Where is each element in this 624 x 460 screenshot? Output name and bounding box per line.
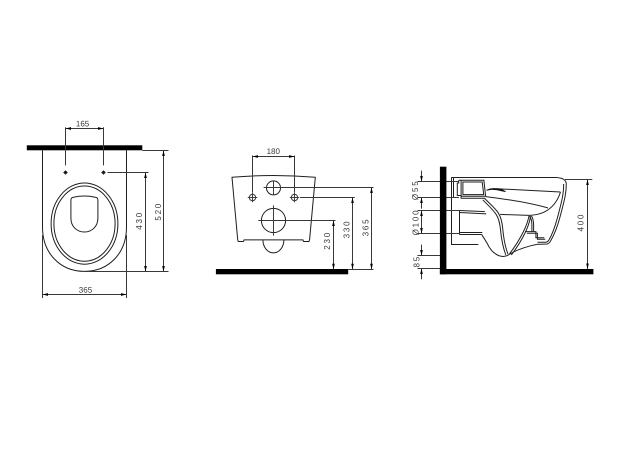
svg-text:180: 180 [267,147,281,156]
svg-text:165: 165 [76,119,90,128]
svg-text:Ø100: Ø100 [411,209,420,236]
svg-text:Ø55: Ø55 [411,180,420,201]
svg-text:85: 85 [413,255,422,268]
svg-text:520: 520 [154,202,163,221]
svg-text:230: 230 [323,231,332,250]
svg-text:430: 430 [135,211,144,230]
svg-text:365: 365 [79,286,93,295]
svg-text:400: 400 [577,213,586,232]
svg-text:365: 365 [362,218,371,237]
svg-text:330: 330 [343,220,352,239]
